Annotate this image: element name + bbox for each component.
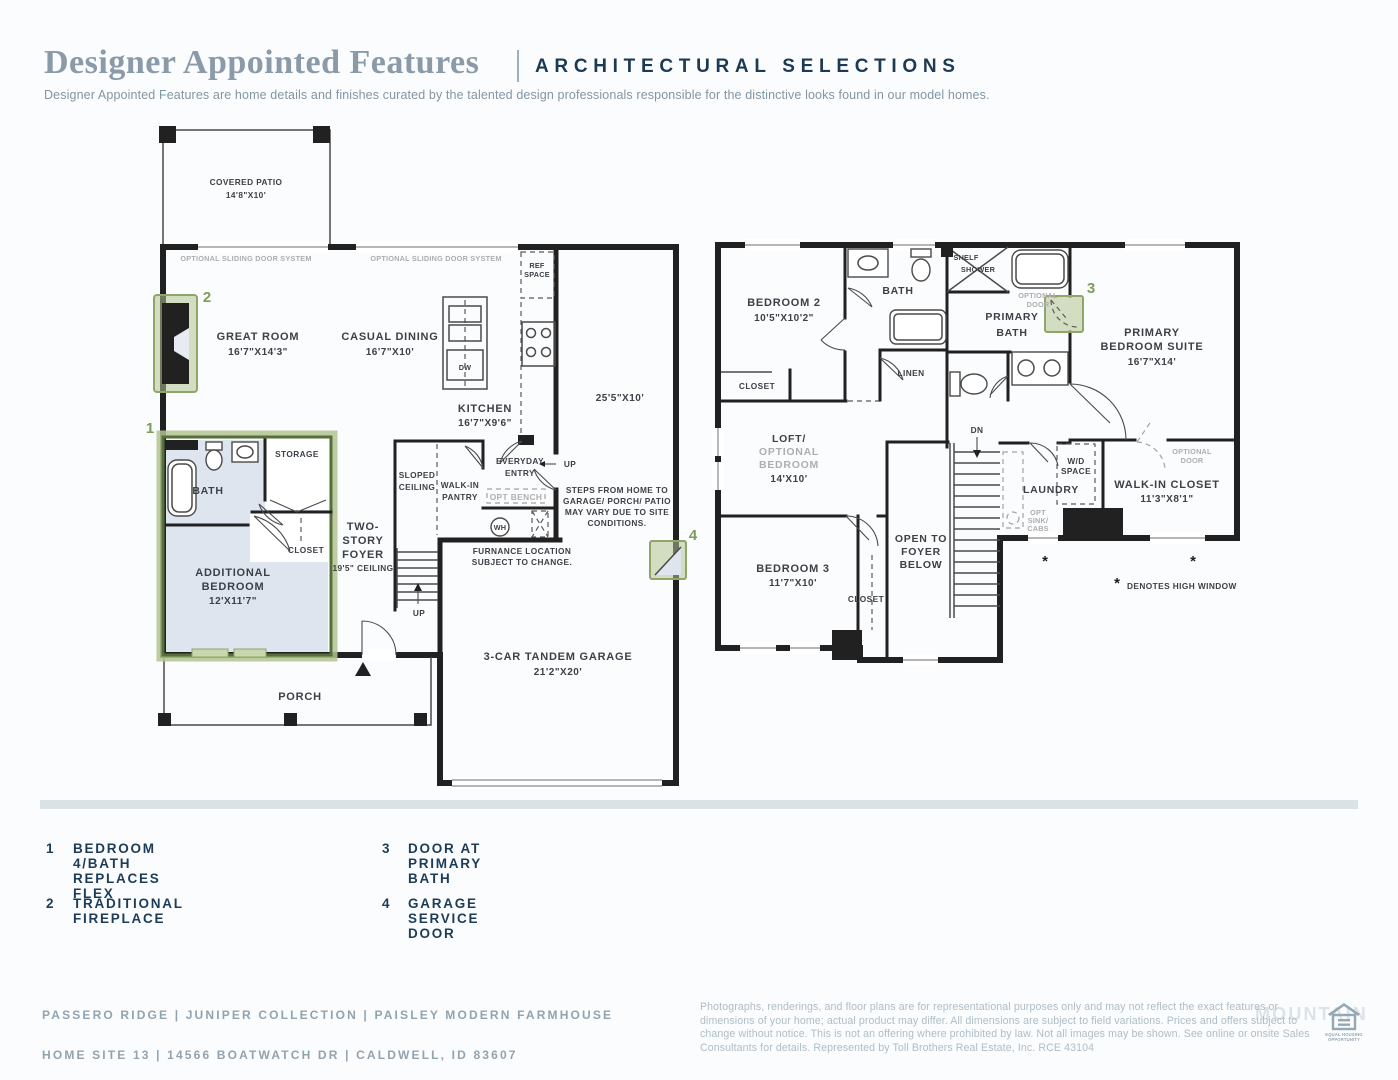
section-divider <box>40 800 1358 809</box>
water-heater-label: WH <box>494 523 507 532</box>
additional-bedroom-2: BEDROOM <box>202 581 265 593</box>
porch-label: PORCH <box>278 691 322 703</box>
kitchen-label: KITCHEN <box>458 403 512 415</box>
covered-patio: COVERED PATIO 14'8"X10' <box>159 126 330 245</box>
footer-disclaimer: Photographs, renderings, and floor plans… <box>700 1001 1318 1055</box>
primary-bath-1: PRIMARY <box>985 311 1038 323</box>
floor-plans: COVERED PATIO 14'8"X10' OPTIONAL SLIDING… <box>0 0 1398 810</box>
legend-4-num: 4 <box>382 896 390 911</box>
optional-door-label-2b: DOOR <box>1181 456 1204 465</box>
wd-space-1: W/D <box>1067 456 1084 466</box>
bath1-label: BATH <box>192 485 223 497</box>
open-foyer-1: OPEN TO <box>895 533 947 545</box>
garage-dims: 21'2"X20' <box>534 667 582 678</box>
legend-2-num: 2 <box>46 896 54 911</box>
footer-address: PASSERO RIDGE | JUNIPER COLLECTION | PAI… <box>42 1005 613 1065</box>
great-room-label: GREAT ROOM <box>217 331 300 343</box>
loft-label-1: LOFT/ <box>772 433 806 445</box>
sloped-ceiling-2: CEILING <box>399 482 436 492</box>
opt-sink-3: CABS <box>1027 524 1049 533</box>
tandem-bay-dims: 25'5"X10' <box>596 393 644 404</box>
fireplace-marker: 2 <box>154 289 211 392</box>
up-label-garage: UP <box>564 459 576 469</box>
loft-label-3: BEDROOM <box>759 459 819 471</box>
shelf-label: SHELF <box>953 253 978 262</box>
additional-bedroom-dims: 12'X11'7" <box>209 596 257 607</box>
everyday-entry-2: ENTRY <box>505 468 535 478</box>
optional-door-label-1b: DOOR <box>1027 300 1050 309</box>
equal-housing-house-icon <box>1327 1002 1361 1032</box>
everyday-entry-1: EVERYDAY <box>496 456 544 466</box>
loft-label-2: OPTIONAL <box>759 446 819 458</box>
marker-2: 2 <box>203 289 211 306</box>
shower-label: SHOWER <box>961 265 996 274</box>
steps-note-4: CONDITIONS. <box>588 518 647 528</box>
high-window-note: DENOTES HIGH WINDOW <box>1127 581 1237 591</box>
porch: PORCH <box>158 657 431 726</box>
foyer-label-2: STORY <box>342 535 383 547</box>
linen-label: LINEN <box>898 368 925 378</box>
marker-3: 3 <box>1087 280 1095 297</box>
loft-dims: 14'X10' <box>770 474 807 485</box>
legend-2-label: TRADITIONAL FIREPLACE <box>73 896 184 926</box>
additional-bedroom-suite: BATH STORAGE CLOSET ADDITIONAL BEDROOM 1… <box>146 420 334 658</box>
bath2-label: BATH <box>882 285 913 297</box>
page: Designer Appointed Features ARCHITECTURA… <box>0 0 1398 1080</box>
first-floor-plan: COVERED PATIO 14'8"X10' OPTIONAL SLIDING… <box>146 126 698 789</box>
wd-space-2: SPACE <box>1061 466 1091 476</box>
front-door <box>355 621 396 676</box>
sloped-ceiling-1: SLOPED <box>399 470 436 480</box>
bedroom3-closet-label: CLOSET <box>848 594 884 604</box>
steps-note-2: GARAGE/ PORCH/ PATIO <box>563 496 671 506</box>
open-foyer-3: BELOW <box>900 559 943 571</box>
high-window-star-2: * <box>1190 553 1196 570</box>
casual-dining-dims: 16'7"X10' <box>366 347 414 358</box>
sliding-door-label-2: OPTIONAL SLIDING DOOR SYSTEM <box>370 254 501 263</box>
marker-1: 1 <box>146 420 154 437</box>
legend-4-label: GARAGE SERVICE DOOR <box>408 896 479 941</box>
bedroom2-dims: 10'5"X10'2" <box>754 313 814 324</box>
opt-bench-label: OPT BENCH <box>490 492 543 502</box>
ref-label-1: REF <box>529 261 545 270</box>
garage-label: 3-CAR TANDEM GARAGE <box>484 651 633 663</box>
sliding-door-label-1: OPTIONAL SLIDING DOOR SYSTEM <box>180 254 311 263</box>
walk-in-closet-dims: 11'3"X8'1" <box>1140 494 1193 505</box>
covered-patio-dims: 14'8"X10' <box>226 190 266 200</box>
closet1-label: CLOSET <box>288 545 324 555</box>
high-window-star-1: * <box>1042 553 1048 570</box>
primary-suite-dims: 16'7"X14' <box>1128 357 1176 368</box>
dn-label: DN <box>971 425 984 435</box>
covered-patio-label: COVERED PATIO <box>210 177 283 187</box>
pantry-label-1: WALK-IN <box>441 480 479 490</box>
legend-3-label: DOOR AT PRIMARY BATH <box>408 841 482 886</box>
additional-bedroom-1: ADDITIONAL <box>195 567 271 579</box>
primary-suite-2: BEDROOM SUITE <box>1101 341 1204 353</box>
footer-address-line1: PASSERO RIDGE | JUNIPER COLLECTION | PAI… <box>42 1008 613 1022</box>
primary-suite-1: PRIMARY <box>1124 327 1180 339</box>
high-window-star-key: * <box>1114 575 1120 592</box>
marker-4: 4 <box>689 527 698 544</box>
pantry-label-2: PANTRY <box>442 492 478 502</box>
foyer-label-3: FOYER <box>342 549 384 561</box>
foyer-label-1: TWO- <box>347 521 379 533</box>
bedroom2-label: BEDROOM 2 <box>747 297 821 309</box>
casual-dining-label: CASUAL DINING <box>341 331 438 343</box>
legend-1-num: 1 <box>46 841 54 856</box>
floor2-stairs: DN <box>950 425 1000 618</box>
bedroom3-dims: 11'7"X10' <box>769 578 817 589</box>
legend-3-num: 3 <box>382 841 390 856</box>
ref-label-2: SPACE <box>524 270 550 279</box>
laundry-label: LAUNDRY <box>1023 484 1079 496</box>
equal-housing-logo: EQUAL HOUSING OPPORTUNITY <box>1324 1002 1364 1042</box>
foyer-ceiling-note: 19'5" CEILING <box>332 563 393 573</box>
second-floor-plan: DN <box>712 239 1237 666</box>
open-foyer-2: FOYER <box>901 546 941 558</box>
furnace-note-2: SUBJECT TO CHANGE. <box>472 557 572 567</box>
up-label-stairs: UP <box>413 608 425 618</box>
equal-housing-text-2: OPPORTUNITY <box>1324 1037 1364 1042</box>
optional-door-label-2a: OPTIONAL <box>1172 447 1212 456</box>
kitchen-dims: 16'7"X9'6" <box>458 418 512 429</box>
steps-note-1: STEPS FROM HOME TO <box>566 485 668 495</box>
steps-note-3: MAY VARY DUE TO SITE <box>565 507 669 517</box>
great-room-dims: 16'7"X14'3" <box>228 347 288 358</box>
legend-1-label: BEDROOM 4/BATH REPLACES FLEX <box>73 841 161 901</box>
optional-door-label-1a: OPTIONAL <box>1018 291 1058 300</box>
dishwasher-label: DW <box>459 363 472 372</box>
footer-address-line2: HOME SITE 13 | 14566 BOATWATCH DR | CALD… <box>42 1048 518 1062</box>
furnace-note-1: FURNANCE LOCATION <box>473 546 572 556</box>
bedroom2-closet-label: CLOSET <box>739 381 775 391</box>
walk-in-closet-label: WALK-IN CLOSET <box>1114 479 1220 491</box>
storage-label: STORAGE <box>275 449 319 459</box>
primary-bath-2: BATH <box>996 327 1027 339</box>
garage-up-arrow: UP <box>539 459 576 469</box>
foyer-stairs: UP <box>397 548 438 618</box>
bedroom3-label: BEDROOM 3 <box>756 563 830 575</box>
